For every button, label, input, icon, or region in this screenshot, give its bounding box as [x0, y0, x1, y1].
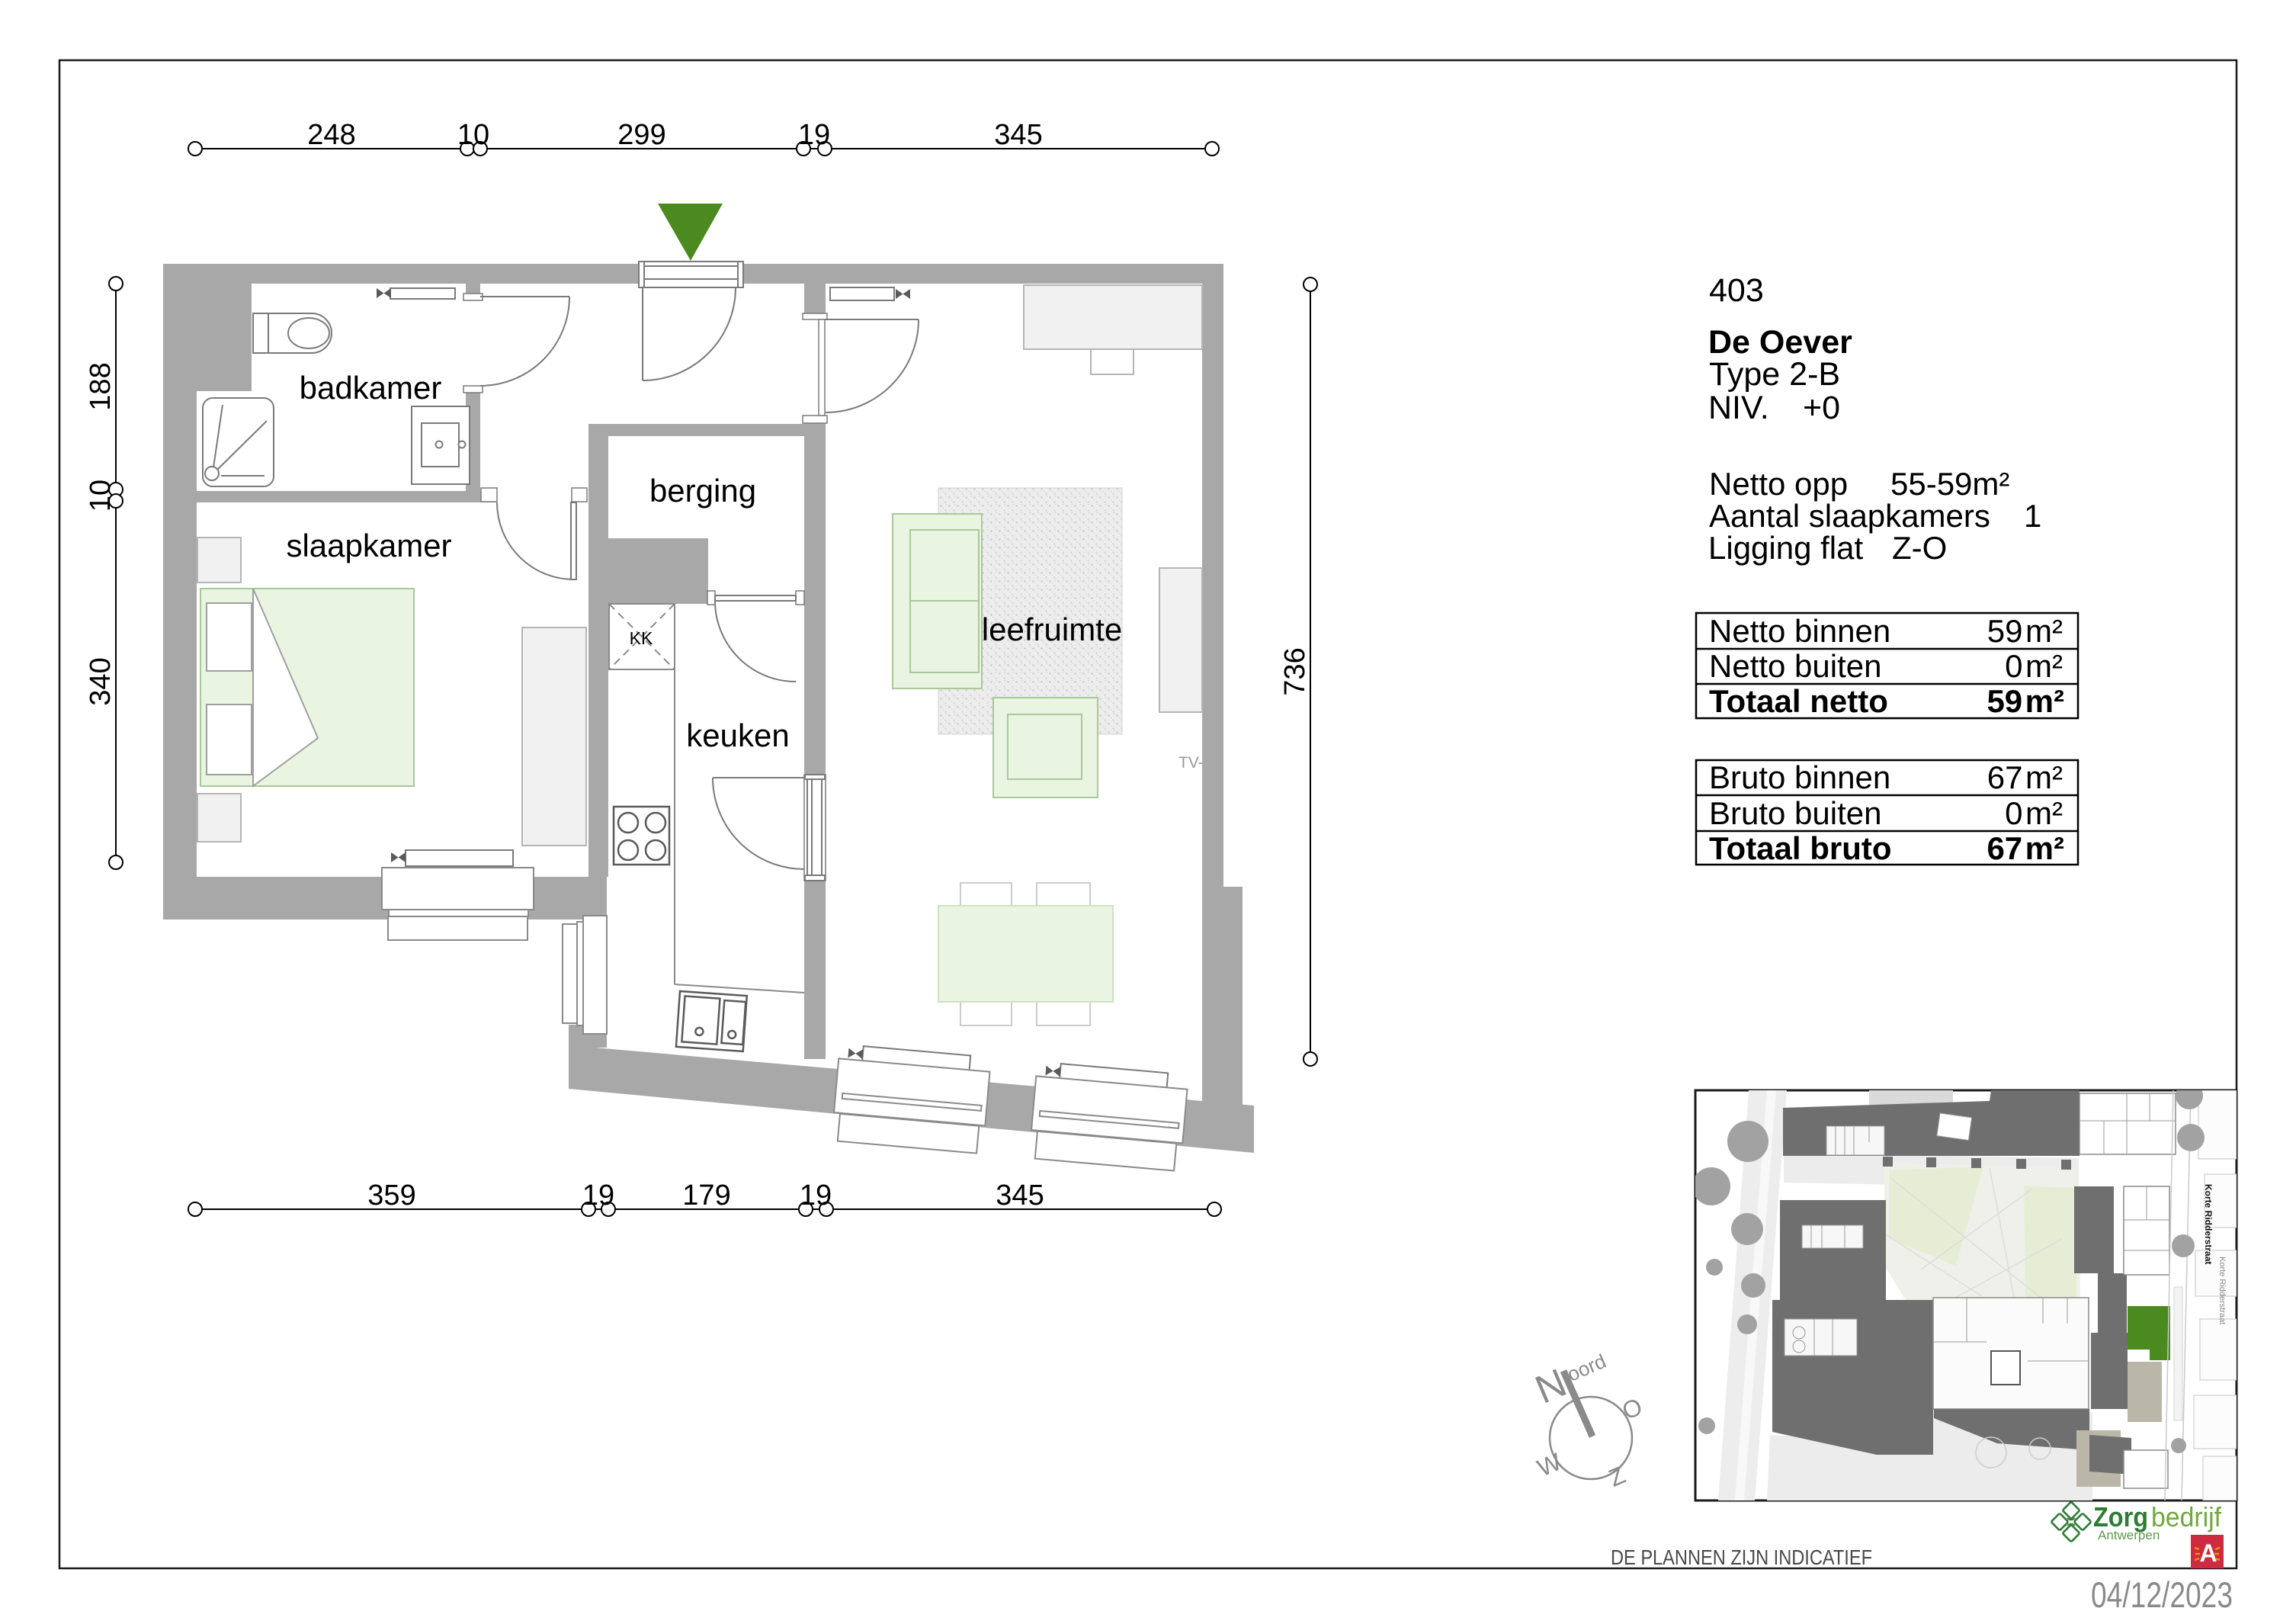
svg-text:0 m²: 0 m² [2005, 648, 2063, 684]
svg-text:Korte Ridderstraat: Korte Ridderstraat [2217, 1257, 2227, 1324]
svg-text:Bruto buiten: Bruto buiten [1709, 795, 1882, 831]
svg-text:Type 2-B: Type 2-B [1709, 356, 1840, 393]
svg-text:59 m²: 59 m² [1987, 613, 2063, 649]
svg-text:slaapkamer: slaapkamer [286, 528, 451, 563]
svg-text:736: 736 [1279, 647, 1311, 695]
svg-text:+0: +0 [1803, 390, 1840, 426]
svg-text:O: O [1618, 1392, 1647, 1425]
svg-text:Ligging flat: Ligging flat [1708, 530, 1863, 566]
svg-text:De Oever: De Oever [1708, 324, 1852, 361]
svg-text:403: 403 [1709, 272, 1764, 309]
svg-text:keuken: keuken [686, 717, 789, 753]
svg-text:299: 299 [617, 119, 665, 151]
svg-text:19: 19 [798, 119, 830, 151]
svg-text:KK: KK [630, 628, 653, 648]
svg-text:oord: oord [1564, 1350, 1610, 1386]
svg-text:59 m²: 59 m² [1987, 683, 2064, 719]
svg-text:345: 345 [996, 1179, 1044, 1212]
svg-text:359: 359 [367, 1179, 415, 1212]
svg-text:188: 188 [85, 362, 117, 410]
svg-text:badkamer: badkamer [300, 370, 442, 406]
svg-text:Aantal slaapkamers: Aantal slaapkamers [1709, 498, 1990, 534]
svg-text:Netto buiten: Netto buiten [1709, 648, 1882, 684]
svg-text:Netto binnen: Netto binnen [1709, 613, 1890, 649]
svg-text:Totaal netto: Totaal netto [1709, 683, 1888, 719]
svg-text:Antwerpen: Antwerpen [2098, 1528, 2160, 1542]
svg-text:Netto opp: Netto opp [1709, 466, 1848, 502]
svg-text:DE PLANNEN ZIJN INDICATIEF: DE PLANNEN ZIJN INDICATIEF [1611, 1545, 1872, 1569]
svg-text:bedrijf: bedrijf [2151, 1501, 2222, 1533]
svg-text:179: 179 [682, 1179, 730, 1212]
svg-text:W: W [1533, 1447, 1566, 1481]
svg-text:248: 248 [307, 119, 355, 151]
svg-text:19: 19 [582, 1179, 614, 1212]
svg-text:340: 340 [85, 657, 117, 705]
svg-text:67 m²: 67 m² [1987, 830, 2064, 866]
svg-text:1: 1 [2024, 498, 2041, 534]
svg-text:Korte Ridderstraat: Korte Ridderstraat [2203, 1184, 2214, 1264]
svg-text:berging: berging [649, 473, 756, 509]
svg-text:Z-O: Z-O [1892, 530, 1947, 566]
svg-text:345: 345 [994, 119, 1042, 151]
svg-text:19: 19 [800, 1179, 832, 1212]
svg-text:Totaal bruto: Totaal bruto [1709, 830, 1892, 866]
svg-text:10: 10 [457, 119, 489, 151]
svg-text:Z: Z [1605, 1461, 1629, 1492]
svg-text:55-59m²: 55-59m² [1890, 466, 2009, 502]
svg-text:Bruto binnen: Bruto binnen [1709, 759, 1890, 795]
svg-text:NIV.: NIV. [1708, 390, 1769, 426]
svg-text:67 m²: 67 m² [1987, 759, 2063, 795]
svg-text:04/12/2023: 04/12/2023 [2091, 1574, 2233, 1615]
svg-text:10: 10 [85, 480, 117, 512]
svg-text:0 m²: 0 m² [2005, 795, 2063, 831]
svg-text:leefruimte: leefruimte [982, 611, 1122, 647]
svg-text:TV-: TV- [1178, 754, 1204, 772]
